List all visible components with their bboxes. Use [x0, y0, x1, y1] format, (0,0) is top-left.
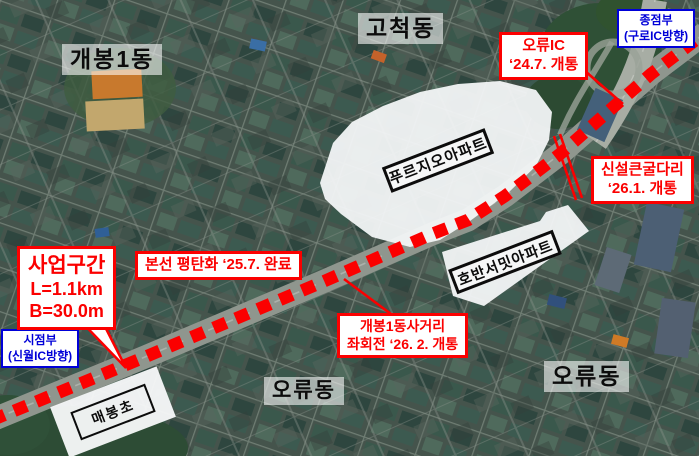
area-label-oryudong-left: 오류동 — [264, 377, 344, 405]
endpoint-end-line2: (구로IC방향) — [624, 29, 688, 45]
project-width: B=30.0m — [28, 301, 105, 323]
callout-mainline-flattening: 본선 평탄화 ‘25.7. 완료 — [135, 251, 302, 280]
callout-oryu-ic: 오류IC ‘24.7. 개통 — [499, 32, 588, 80]
project-length: L=1.1km — [28, 279, 105, 301]
endpoint-end-line1: 종점부 — [624, 13, 688, 29]
area-label-gocheokdong: 고척동 — [358, 13, 443, 44]
endpoint-start-line2: (신월IC방향) — [8, 349, 72, 365]
map-canvas: 개봉1동 고척동 오류동 오류동 종점부 (구로IC방향) 시점부 (신월IC방… — [0, 0, 699, 456]
endpoint-box-end: 종점부 (구로IC방향) — [617, 9, 695, 48]
area-label-oryudong-right: 오류동 — [544, 361, 629, 392]
endpoint-start-line1: 시점부 — [8, 333, 72, 349]
callout-gaebong-intersection: 개봉1동사거리 좌회전 ‘26. 2. 개통 — [337, 313, 468, 358]
area-label-gaebong1dong: 개봉1동 — [62, 44, 162, 75]
project-section-title: 사업구간 — [28, 253, 105, 279]
endpoint-box-start: 시점부 (신월IC방향) — [1, 329, 79, 368]
callout-project-section: 사업구간 L=1.1km B=30.0m — [17, 246, 116, 330]
callout-sinseol-bridge: 신설큰굴다리 ‘26.1. 개통 — [591, 156, 694, 204]
